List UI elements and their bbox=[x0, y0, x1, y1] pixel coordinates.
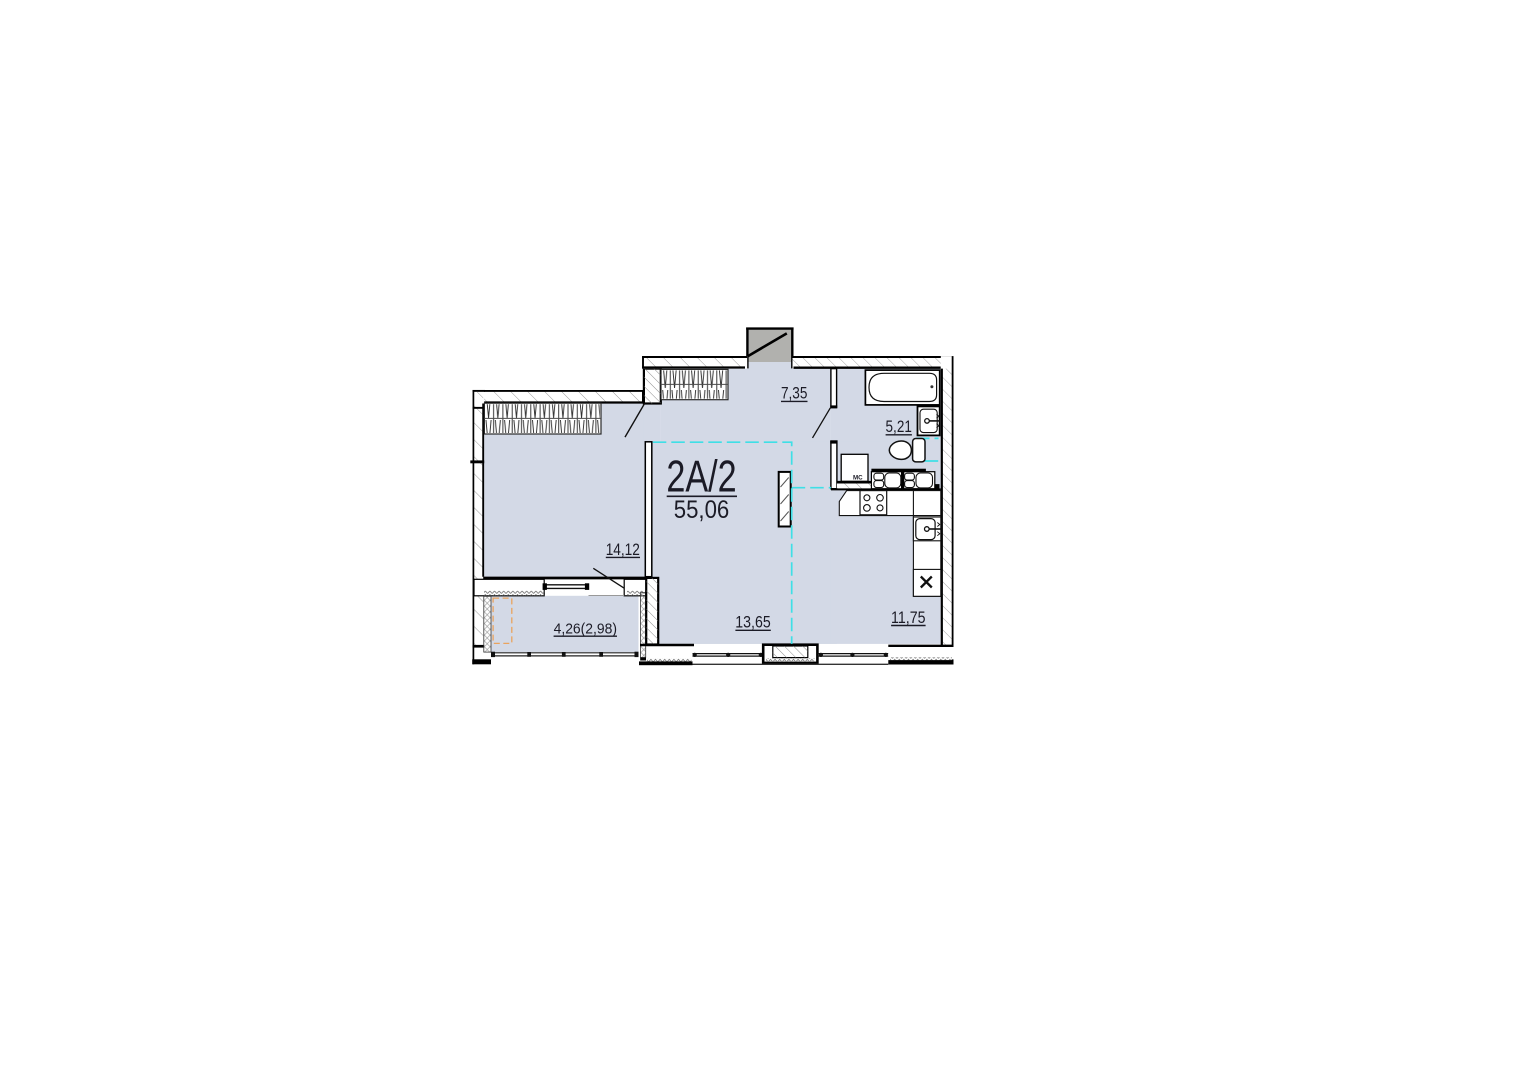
svg-text:4,26(2,98): 4,26(2,98) bbox=[554, 621, 617, 638]
svg-text:11,75: 11,75 bbox=[891, 608, 926, 627]
svg-text:14,12: 14,12 bbox=[606, 540, 640, 559]
svg-text:55,06: 55,06 bbox=[674, 497, 730, 524]
svg-text:13,65: 13,65 bbox=[735, 613, 770, 632]
svg-text:7,35: 7,35 bbox=[781, 384, 808, 403]
svg-text:5,21: 5,21 bbox=[886, 417, 912, 436]
svg-text:2А/2: 2А/2 bbox=[666, 453, 736, 502]
svg-text:МС: МС bbox=[853, 475, 863, 482]
